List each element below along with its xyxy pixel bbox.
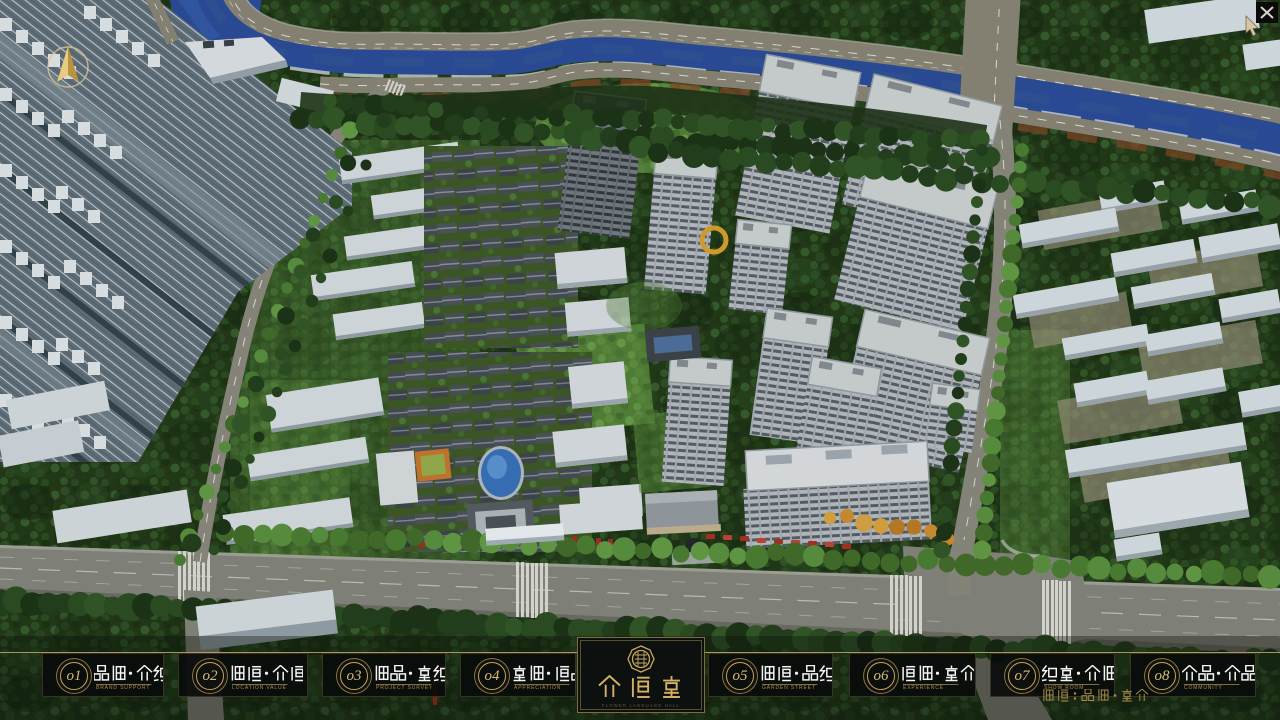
svg-text:FLOWER LANGUAGE HALL: FLOWER LANGUAGE HALL <box>602 703 680 708</box>
